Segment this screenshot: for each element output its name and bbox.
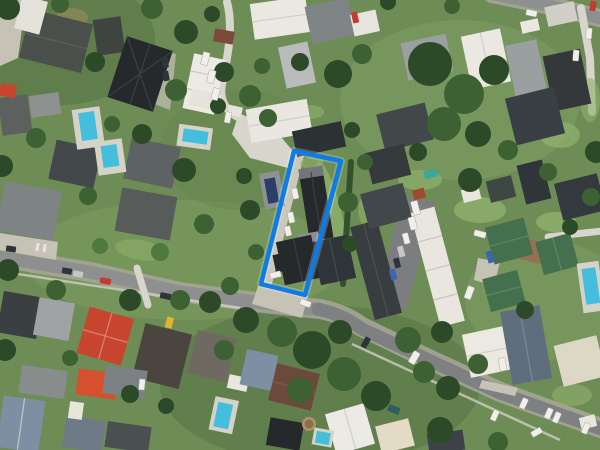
swimming-pool	[94, 138, 126, 176]
tree	[248, 244, 264, 260]
tree	[327, 357, 361, 391]
tree	[239, 85, 261, 107]
tree	[409, 143, 427, 161]
tree	[413, 361, 435, 383]
tree	[119, 289, 141, 311]
tree	[324, 60, 352, 88]
tree	[431, 321, 453, 343]
house-roof	[0, 94, 32, 136]
car	[138, 379, 145, 391]
tree	[361, 381, 391, 411]
tree	[479, 55, 509, 85]
house-roof	[0, 395, 45, 450]
swimming-pool	[176, 124, 213, 151]
tree	[151, 243, 169, 261]
swimming-pool	[312, 427, 335, 447]
tree	[121, 385, 139, 403]
tree	[174, 20, 198, 44]
tree	[338, 192, 358, 212]
tree	[436, 376, 460, 400]
tree	[468, 354, 488, 374]
tree	[170, 290, 190, 310]
house-roof	[0, 181, 62, 240]
trampoline-center	[305, 420, 314, 429]
tree	[158, 398, 174, 414]
tree	[287, 377, 313, 403]
tree	[62, 350, 78, 366]
tree	[85, 52, 105, 72]
tree	[328, 320, 352, 344]
map-viewport[interactable]	[0, 0, 600, 450]
tree	[539, 163, 557, 181]
tree	[79, 187, 97, 205]
lawn	[552, 384, 592, 406]
tree	[352, 44, 372, 64]
tree	[165, 79, 187, 101]
tree	[267, 317, 297, 347]
tree	[444, 74, 484, 114]
tree	[210, 98, 226, 114]
tree	[214, 340, 234, 360]
tree	[342, 236, 358, 252]
tree	[395, 327, 421, 353]
tree	[194, 214, 214, 234]
tree	[46, 280, 66, 300]
tree	[221, 277, 239, 295]
tree	[204, 6, 220, 22]
red-roof-small	[0, 83, 17, 99]
house-roof	[33, 297, 75, 341]
tree	[293, 331, 331, 369]
tree	[291, 53, 309, 71]
tree	[233, 307, 259, 333]
tree	[582, 188, 600, 206]
tree	[357, 154, 373, 170]
tree	[259, 109, 277, 127]
tree	[427, 417, 453, 443]
tree	[104, 116, 120, 132]
tree	[516, 301, 534, 319]
car	[585, 28, 592, 39]
tree	[92, 238, 108, 254]
tree	[236, 168, 252, 184]
garage-roof	[29, 92, 62, 118]
tree	[562, 219, 578, 235]
aerial-map[interactable]	[0, 0, 600, 450]
house-roof	[93, 16, 126, 56]
tree	[465, 121, 491, 147]
tree	[344, 122, 360, 138]
tree	[172, 158, 196, 182]
house-roof	[266, 417, 304, 450]
tree	[132, 124, 152, 144]
tree	[408, 42, 452, 86]
tree	[498, 140, 518, 160]
tree	[199, 291, 221, 313]
tree	[254, 58, 270, 74]
tree	[214, 62, 234, 82]
car	[572, 50, 579, 61]
tree	[427, 107, 461, 141]
tree	[240, 200, 260, 220]
shed-small	[68, 401, 84, 420]
tree	[458, 168, 482, 192]
tree	[26, 128, 46, 148]
